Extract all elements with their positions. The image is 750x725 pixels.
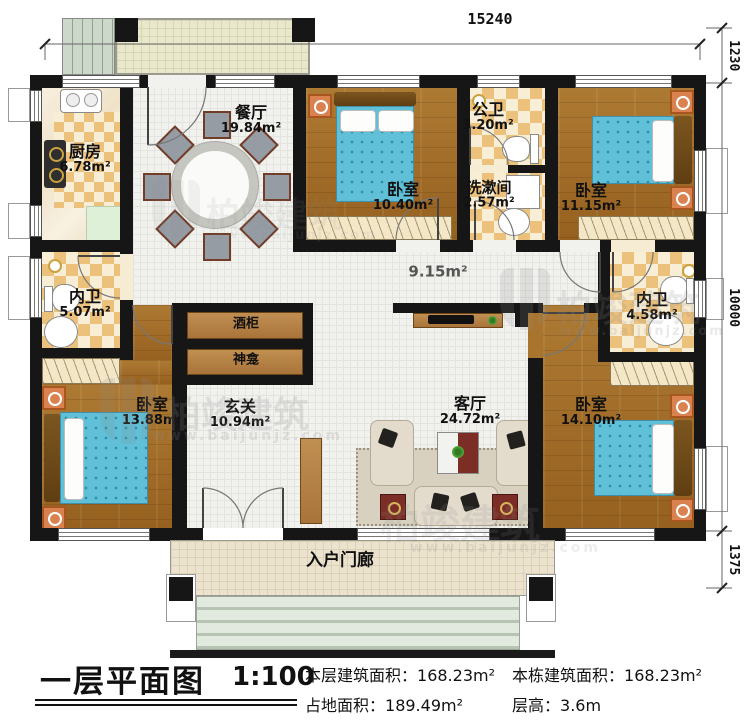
window <box>215 75 275 88</box>
pillow <box>652 120 674 182</box>
stat-floor-area: 本层建筑面积：168.23m² <box>305 662 495 686</box>
window <box>30 90 42 122</box>
room-label-bedroom-top-right: 卧室 11.15m² <box>561 182 621 214</box>
stat-building-area: 本栋建筑面积：168.23m² <box>512 662 702 686</box>
room-label-washroom: 洗漱间 2.57m² <box>463 179 514 210</box>
shrine-label: 神龛 <box>233 354 259 369</box>
dimension-label-top: 15240 <box>455 10 525 28</box>
toilet-tank-icon <box>530 134 539 164</box>
nightstand <box>670 498 694 522</box>
armchair <box>370 420 414 486</box>
toilet-icon <box>502 136 530 162</box>
room-label-dining: 餐厅 19.84m² <box>221 104 281 136</box>
deck-column <box>292 18 315 42</box>
back-deck <box>115 18 310 75</box>
bed-headboard <box>334 92 416 106</box>
bedroom-bottom-left-floor <box>133 305 172 360</box>
dimension-label-right-top: 1230 <box>726 30 741 82</box>
watermark-url: www.baijunjz.com <box>410 540 601 556</box>
interior-wall <box>30 348 133 358</box>
window <box>477 75 520 88</box>
room-label-bedroom-bottom-right: 卧室 14.10m² <box>561 396 621 428</box>
plant-icon <box>452 446 464 458</box>
window <box>58 528 150 541</box>
wardrobe <box>610 360 694 386</box>
door-opening <box>560 240 600 252</box>
steps-edge <box>170 650 555 658</box>
plant-icon <box>488 316 497 325</box>
nightstand <box>670 394 694 418</box>
washbasin-icon <box>44 316 78 348</box>
entrance-steps <box>196 596 520 650</box>
plan-scale: 1:100 <box>232 662 315 692</box>
window <box>337 75 420 88</box>
porch-label: 入户门廊 <box>306 551 374 570</box>
cabinet-wall <box>187 303 313 312</box>
window <box>575 75 672 88</box>
porch-column <box>529 577 553 601</box>
door-opening <box>611 240 655 252</box>
watermark-logo-icon <box>100 378 154 444</box>
nightstand <box>670 186 694 210</box>
window <box>30 205 42 237</box>
sink-basin-icon <box>84 93 98 107</box>
faucet-icon <box>48 259 62 273</box>
nightstand <box>42 506 66 530</box>
window <box>694 150 706 212</box>
title-underline <box>35 704 297 706</box>
door-opening <box>473 240 516 252</box>
interior-wall <box>598 352 706 362</box>
window <box>62 75 140 88</box>
bed-headboard <box>674 116 692 184</box>
room-label-public-bath: 公卫 3.20m² <box>462 101 513 133</box>
door-opening <box>396 240 440 252</box>
window-ledge <box>8 256 30 320</box>
toilet-tank-icon <box>44 286 53 312</box>
window-ledge <box>706 446 728 512</box>
title-underline <box>35 699 297 701</box>
watermark-url: www.baijunjz.com <box>212 228 377 243</box>
door-opening <box>120 254 133 300</box>
pillow <box>378 110 414 132</box>
window-ledge <box>706 148 728 214</box>
window-ledge <box>8 203 30 239</box>
room-label-bath-left: 内卫 5.07m² <box>59 288 110 320</box>
pillow <box>652 424 674 494</box>
watermark-url: www.baijunjz.com <box>560 324 725 339</box>
bed-headboard <box>674 420 692 496</box>
door-opening <box>148 75 206 88</box>
pillow <box>340 110 376 132</box>
dimension-label-right-mid: 10000 <box>726 270 741 346</box>
exterior-stairs <box>62 18 115 75</box>
interior-wall <box>545 75 558 252</box>
foyer-screen <box>300 438 322 524</box>
watermark-logo-icon <box>152 180 200 238</box>
plan-title: 一层平面图 <box>40 656 205 701</box>
wardrobe <box>578 216 694 240</box>
window <box>694 448 706 510</box>
nightstand <box>42 386 66 410</box>
nightstand <box>308 94 332 118</box>
porch-column <box>169 577 193 601</box>
corridor-area-label: 9.15m² <box>408 264 467 281</box>
stat-storey-height: 层高：3.6m <box>512 692 601 716</box>
sink-basin-icon <box>66 93 80 107</box>
washbasin-icon <box>498 208 530 236</box>
watermark-url: www.baijunjz.com <box>152 428 343 444</box>
room-label-living: 客厅 24.72m² <box>440 395 500 427</box>
room-label-kitchen: 厨房 6.78m² <box>59 143 110 175</box>
interior-wall <box>30 240 133 252</box>
watermark-logo-icon <box>500 268 550 330</box>
bed-headboard <box>44 414 60 502</box>
door-opening <box>470 165 508 173</box>
window <box>30 258 42 318</box>
interior-wall <box>120 75 133 360</box>
room-label-bedroom-top-left: 卧室 10.40m² <box>373 181 433 213</box>
window-ledge <box>8 88 30 122</box>
cabinet-wall <box>187 375 313 385</box>
window-ledge <box>706 278 724 320</box>
deck-column <box>115 18 138 42</box>
cabinet-wall <box>187 339 303 349</box>
tv-icon <box>428 315 474 324</box>
stat-footprint-area: 占地面积：189.49m² <box>305 692 463 716</box>
dimension-label-right-bottom: 1375 <box>726 532 741 588</box>
wine-cabinet-label: 酒柜 <box>233 318 259 333</box>
nightstand <box>670 90 694 114</box>
pillow <box>64 418 84 500</box>
cabinet-wall <box>303 312 313 375</box>
floor-plan: 15240 1230 10000 1375 厨房 6.78m² 餐厅 19.84… <box>0 0 750 725</box>
